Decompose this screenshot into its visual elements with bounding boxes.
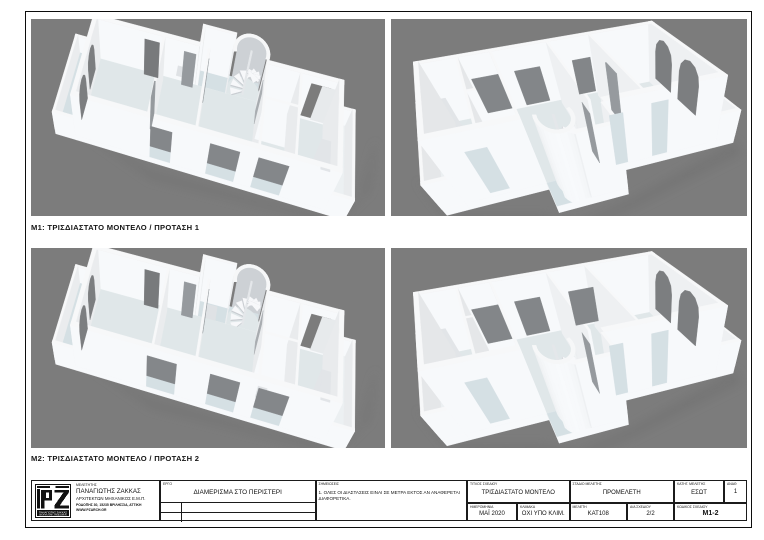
svg-text:ARCHITECTURE - VISUALIZATION: ARCHITECTURE - VISUALIZATION bbox=[39, 514, 67, 517]
